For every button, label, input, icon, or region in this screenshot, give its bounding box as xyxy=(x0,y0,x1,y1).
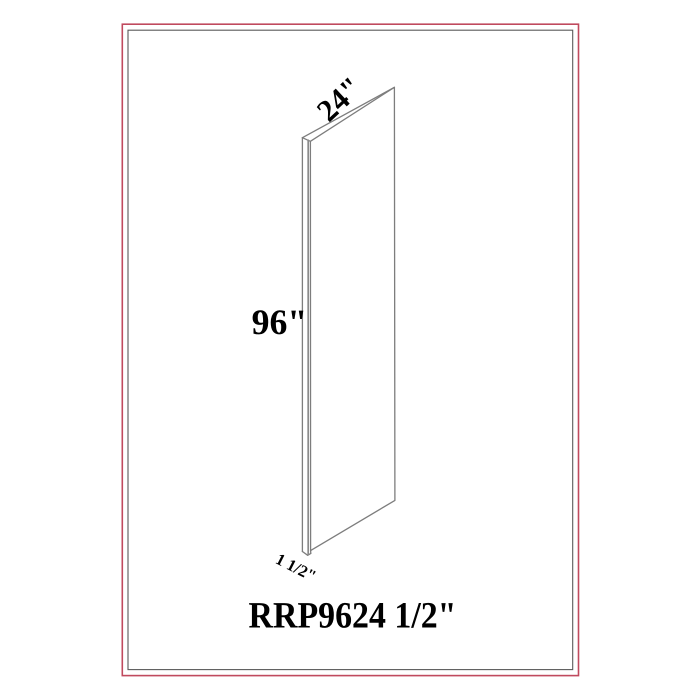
svg-text:RRP9624 1/2": RRP9624 1/2" xyxy=(249,596,457,637)
svg-text:1 1/2": 1 1/2" xyxy=(273,549,320,585)
svg-text:96": 96" xyxy=(252,302,308,342)
